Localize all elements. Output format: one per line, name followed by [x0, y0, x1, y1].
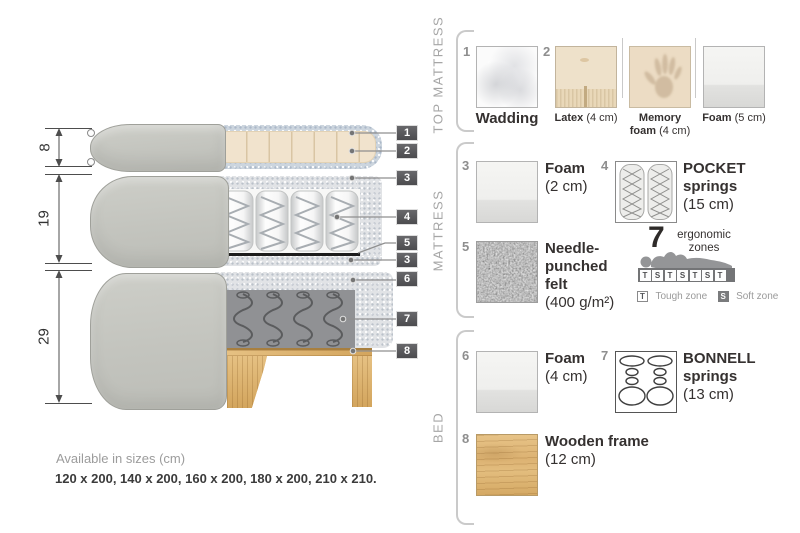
callout-badge-1: 1 [396, 125, 418, 141]
callout-badge-5: 5 [396, 235, 418, 251]
callout-badge-3: 3 [396, 170, 418, 186]
callout-badge-7: 7 [396, 311, 418, 327]
callout-badge-8: 8 [396, 343, 418, 359]
callout-badge-3b: 3 [396, 252, 418, 268]
callout-badge-6: 6 [396, 271, 418, 287]
callout-badge-2: 2 [396, 143, 418, 159]
callout-badge-4: 4 [396, 209, 418, 225]
mattress-construction-infographic: 8 19 29 1 2 3 4 5 3 6 7 8 TOP MATTRESS 1… [0, 0, 800, 533]
